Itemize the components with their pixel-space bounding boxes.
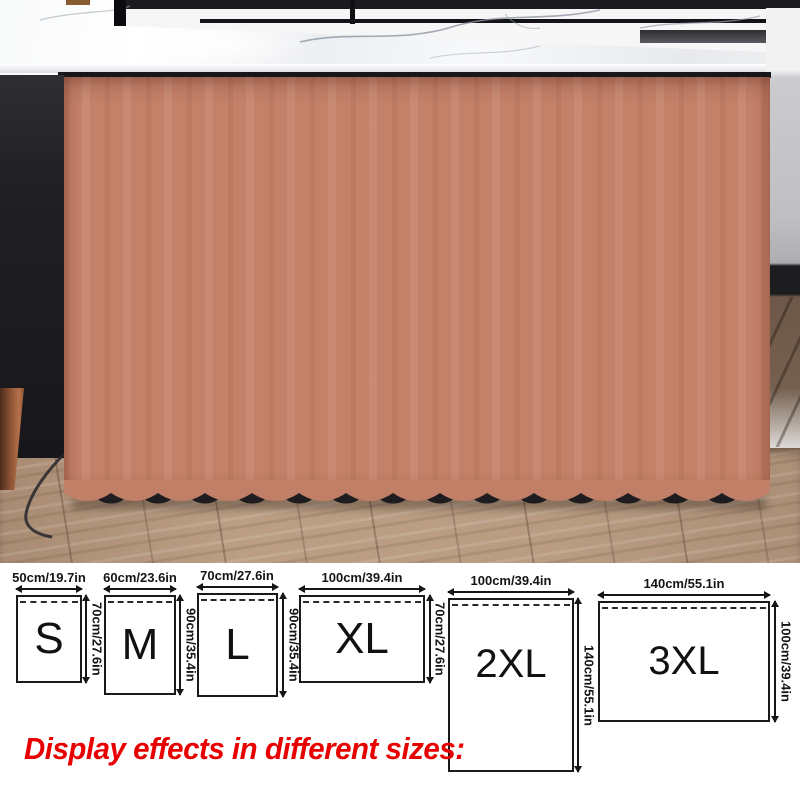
width-arrow <box>598 594 770 596</box>
size-letter: M <box>106 597 174 693</box>
caption-text: Display effects in different sizes: <box>24 731 465 767</box>
right-wall-and-baseboard <box>766 8 800 460</box>
size-box-3xl: 3XL <box>598 601 770 722</box>
height-label: 70cm/27.6in <box>89 595 105 683</box>
width-arrow <box>16 588 82 590</box>
width-arrow <box>448 591 574 593</box>
curtain-wavy-hem <box>64 480 770 514</box>
cabinet-seam-vertical <box>350 0 355 24</box>
width-arrow <box>299 588 425 590</box>
corner-floor-grain <box>766 297 800 447</box>
size-box-s: S <box>16 595 82 683</box>
height-label: 70cm/27.6in <box>432 595 448 683</box>
width-label: 100cm/39.4in <box>446 574 576 588</box>
width-label: 140cm/55.1in <box>619 577 749 591</box>
size-letter: 3XL <box>600 603 768 720</box>
height-arrow <box>179 595 181 695</box>
size-box-xl: XL <box>299 595 425 683</box>
wooden-board-on-counter <box>66 0 90 5</box>
size-box-2xl: 2XL <box>448 598 574 772</box>
height-arrow <box>85 595 87 683</box>
height-arrow <box>282 593 284 697</box>
size-letter: S <box>18 597 80 681</box>
kitchen-photo <box>0 0 800 563</box>
size-letter: L <box>199 595 276 695</box>
size-box-m: M <box>104 595 176 695</box>
height-arrow <box>429 595 431 683</box>
height-arrow <box>774 601 776 722</box>
product-image: 50cm/19.7in S 70cm/27.6in 60cm/23.6in M … <box>0 0 800 800</box>
size-letter: 2XL <box>450 600 572 770</box>
width-arrow <box>104 588 176 590</box>
size-letter: XL <box>301 597 423 681</box>
curtain-panel <box>64 77 770 482</box>
size-box-l: L <box>197 593 278 697</box>
height-label: 100cm/39.4in <box>778 601 794 722</box>
height-label: 140cm/55.1in <box>581 598 597 772</box>
cabinet-corner-bar <box>114 0 126 26</box>
width-label: 70cm/27.6in <box>172 569 302 583</box>
width-label: 100cm/39.4in <box>297 571 427 585</box>
height-arrow <box>577 598 579 772</box>
width-arrow <box>197 586 278 588</box>
